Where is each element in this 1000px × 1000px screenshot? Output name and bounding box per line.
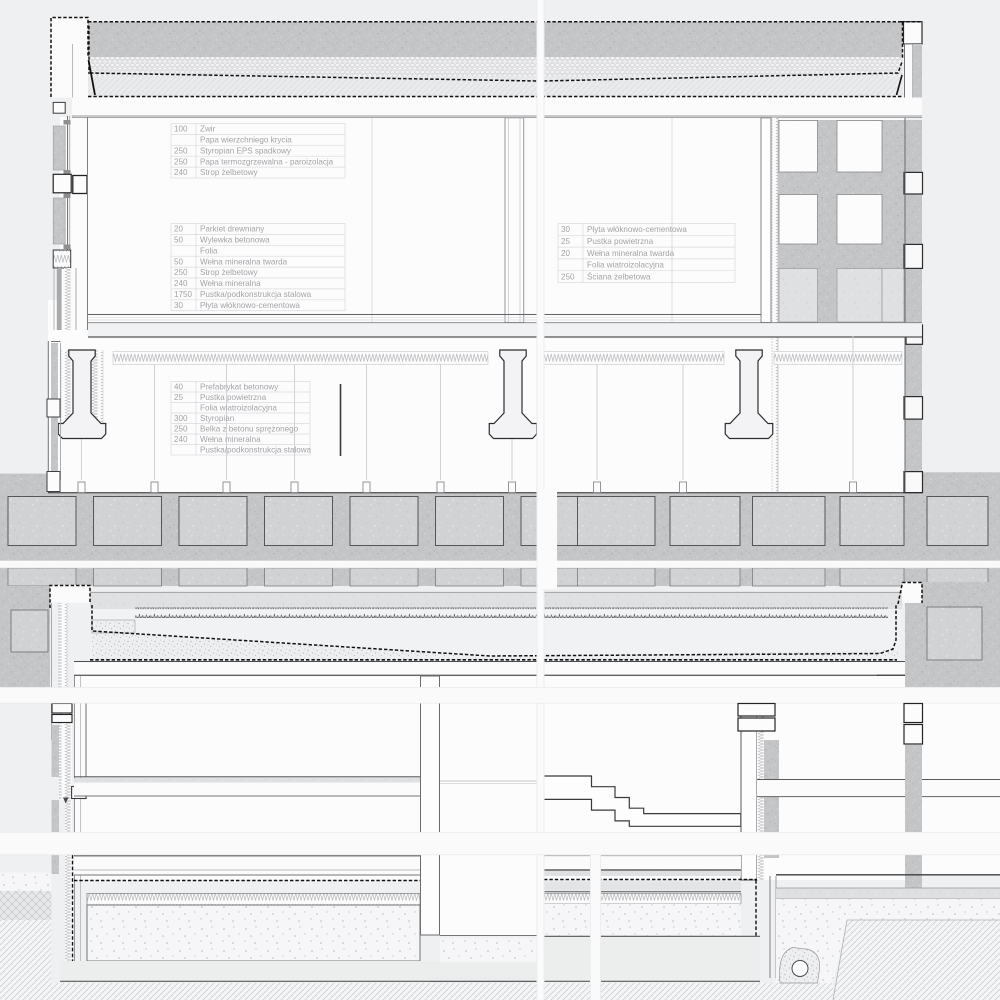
svg-text:Papa wierzchniego krycia: Papa wierzchniego krycia — [200, 136, 292, 145]
svg-text:Strop żelbetowy: Strop żelbetowy — [200, 168, 259, 177]
svg-text:250: 250 — [561, 272, 575, 281]
svg-text:Wełna mineralna: Wełna mineralna — [200, 279, 261, 288]
svg-text:Ściana żelbetowa: Ściana żelbetowa — [587, 272, 651, 281]
svg-text:250: 250 — [174, 268, 188, 277]
svg-text:Styropian: Styropian — [200, 414, 234, 423]
svg-text:Zwir: Zwir — [200, 125, 216, 134]
svg-text:40: 40 — [174, 382, 184, 391]
svg-text:Wełna mineralna twarda: Wełna mineralna twarda — [587, 249, 675, 258]
svg-text:Wełna mineralna: Wełna mineralna — [200, 435, 261, 444]
svg-text:Pustka powietrzna: Pustka powietrzna — [200, 393, 267, 402]
svg-text:20: 20 — [174, 225, 184, 234]
svg-text:250: 250 — [174, 146, 188, 155]
svg-text:25: 25 — [561, 237, 571, 246]
svg-text:Folia: Folia — [200, 246, 218, 255]
svg-text:Pustka powietrzna: Pustka powietrzna — [587, 237, 654, 246]
svg-text:25: 25 — [174, 393, 184, 402]
svg-text:100: 100 — [174, 125, 188, 134]
svg-text:Prefabrykat betonowy: Prefabrykat betonowy — [200, 382, 279, 391]
svg-text:250: 250 — [174, 424, 188, 433]
svg-text:240: 240 — [174, 279, 188, 288]
svg-text:240: 240 — [174, 435, 188, 444]
svg-text:30: 30 — [561, 225, 571, 234]
svg-text:1750: 1750 — [174, 290, 193, 299]
svg-text:Belka z betonu sprężonego: Belka z betonu sprężonego — [200, 424, 299, 433]
svg-text:300: 300 — [174, 414, 188, 423]
svg-text:Wełna mineralna twarda: Wełna mineralna twarda — [200, 257, 288, 266]
svg-text:50: 50 — [174, 236, 184, 245]
svg-text:Pustka/podkonstrukcja stalowa: Pustka/podkonstrukcja stalowa — [200, 290, 312, 299]
svg-text:20: 20 — [561, 249, 571, 258]
svg-text:Folia wiatroizolacyjna: Folia wiatroizolacyjna — [200, 403, 277, 412]
svg-text:30: 30 — [174, 301, 184, 310]
svg-text:Płyta włóknowo-cementowa: Płyta włóknowo-cementowa — [587, 225, 687, 234]
svg-text:Parkiet drewniany: Parkiet drewniany — [200, 225, 265, 234]
svg-text:250: 250 — [174, 157, 188, 166]
svg-text:Pustka/podkonstrukcja stalowa: Pustka/podkonstrukcja stalowa — [200, 445, 312, 454]
svg-text:50: 50 — [174, 257, 184, 266]
svg-text:240: 240 — [174, 168, 188, 177]
svg-text:Folia wiatroizolacyjna: Folia wiatroizolacyjna — [587, 261, 664, 270]
svg-text:Wylewka betonowa: Wylewka betonowa — [200, 236, 270, 245]
svg-text:Papa termozgrzewalna - paroizo: Papa termozgrzewalna - paroizolacja — [200, 157, 334, 166]
svg-text:Strop żelbetowy: Strop żelbetowy — [200, 268, 259, 277]
svg-text:Płyta włóknowo-cementowa: Płyta włóknowo-cementowa — [200, 301, 300, 310]
svg-text:Styropian EPS spadkowy: Styropian EPS spadkowy — [200, 146, 292, 155]
